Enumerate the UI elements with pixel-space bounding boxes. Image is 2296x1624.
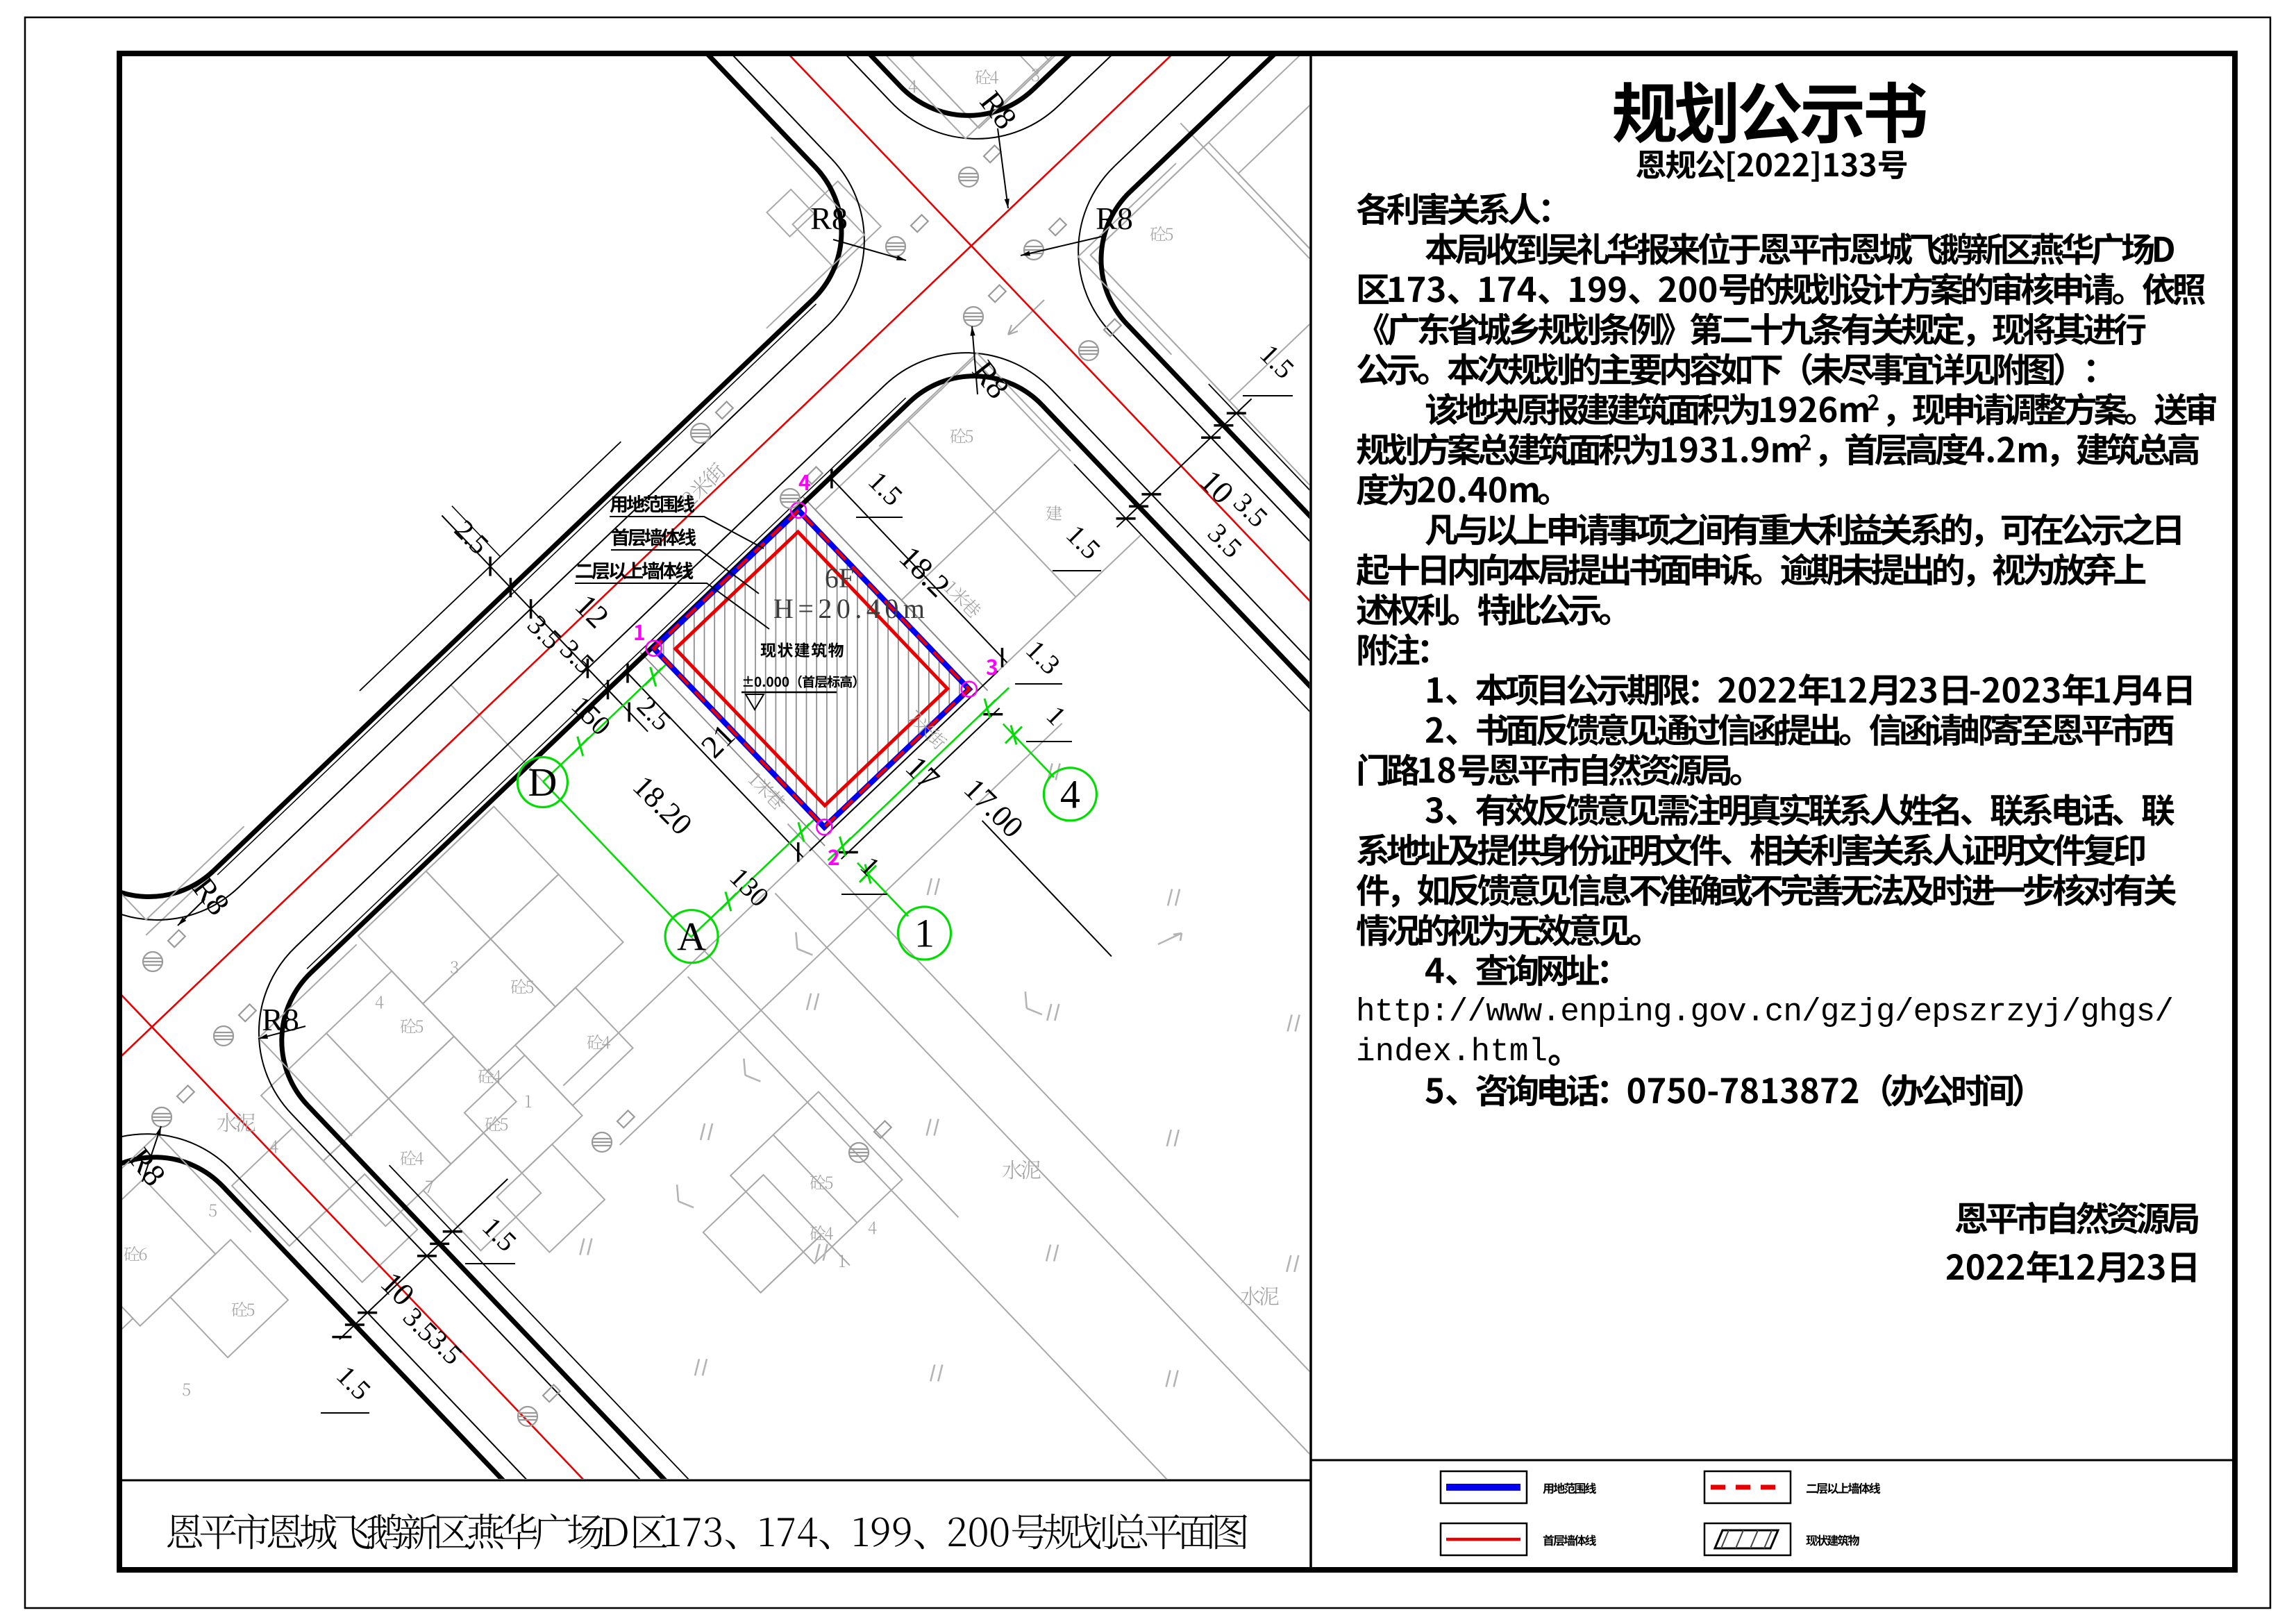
svg-text:1: 1 [914, 911, 935, 956]
svg-text:6F: 6F [825, 562, 854, 594]
svg-text:A: A [677, 914, 706, 959]
svg-text:R8: R8 [810, 201, 848, 236]
svg-text:D: D [528, 760, 557, 805]
svg-text:R8: R8 [1096, 201, 1133, 236]
svg-text:index.html: index.html [1356, 1034, 1548, 1070]
svg-text:http://www.enping.gov.cn/gzjg/: http://www.enping.gov.cn/gzjg/epszrzyj/g… [1356, 994, 2174, 1030]
svg-text:R8: R8 [262, 1002, 299, 1037]
svg-text:4: 4 [1060, 772, 1080, 817]
